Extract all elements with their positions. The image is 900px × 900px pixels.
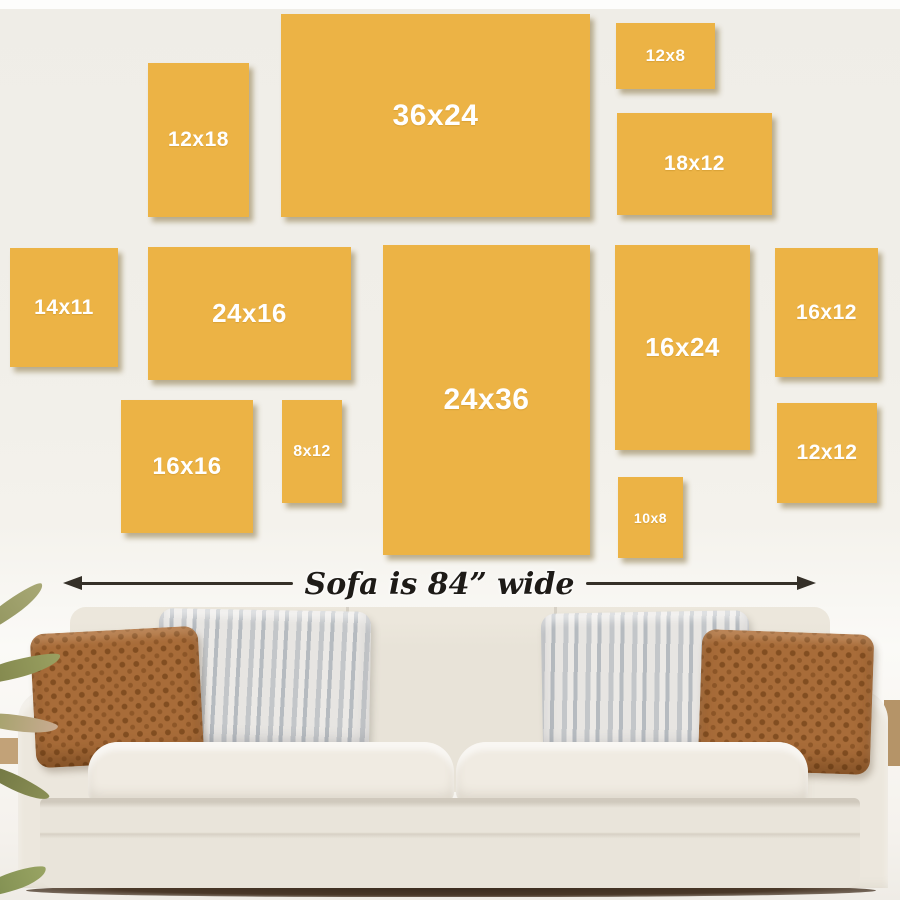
wall-art-size-guide: 12x1836x2412x818x1214x1124x1624x3616x241… — [0, 0, 900, 900]
sofa-base — [40, 798, 860, 888]
sofa — [0, 0, 900, 900]
seat-cushion-left — [88, 742, 454, 804]
seat-cushion-right — [456, 742, 808, 804]
